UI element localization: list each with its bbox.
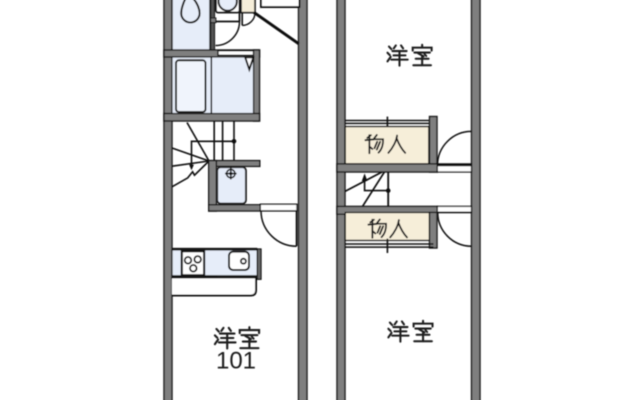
svg-text:101: 101: [216, 348, 256, 375]
